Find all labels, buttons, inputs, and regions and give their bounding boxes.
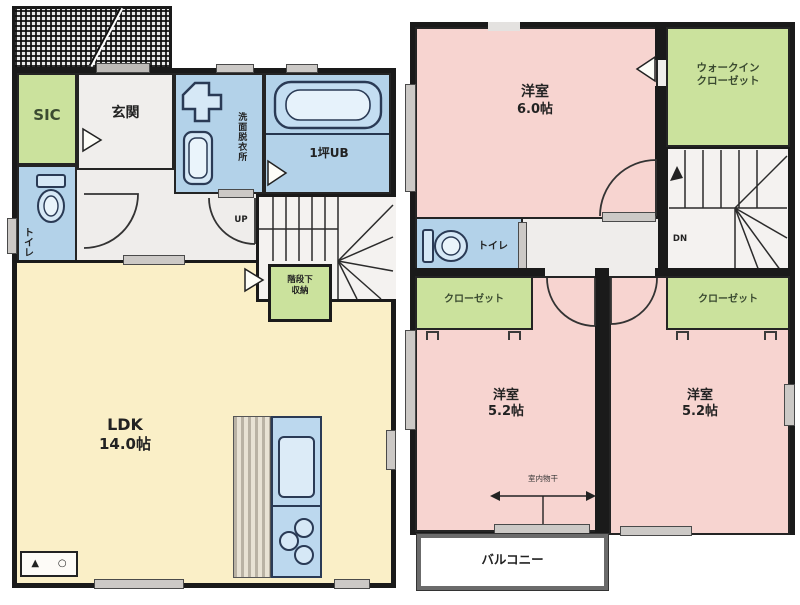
genkan-label: 玄関: [77, 105, 174, 123]
window: [405, 84, 416, 192]
wall-segment: [655, 268, 795, 276]
window: [620, 526, 692, 536]
hall-ldk-door: [123, 255, 185, 265]
balcony-label: バルコニー: [417, 552, 608, 568]
ldk-label: LDK: [55, 415, 195, 435]
wic-door-triangle-icon: [636, 56, 656, 82]
up-label: UP: [227, 215, 255, 226]
bedroom3-label-block: 洋室 5.2帖: [650, 388, 750, 421]
kitchen-sink: [278, 436, 315, 498]
stairs-down-treads: [669, 150, 787, 271]
toilet-1f-label: トイレ: [20, 222, 33, 262]
floor-plan: SIC 玄関 洗面脱衣所 1坪UB トイレ: [0, 0, 800, 605]
toilet-icon: [421, 224, 471, 268]
window: [7, 218, 17, 254]
window: [216, 64, 254, 73]
kitchen-cabinet: [233, 416, 271, 578]
bedroom3-door-arc: [609, 276, 659, 328]
wic-label-line2: クローゼット: [697, 75, 760, 87]
dn-label: DN: [668, 234, 692, 245]
storage-label-line2: 収納: [291, 286, 308, 296]
legend-triangle: ▲: [31, 558, 39, 571]
bedroom2-label: 洋室: [456, 388, 556, 404]
closet-bracket-icon: [426, 331, 439, 340]
hall-door-arc: [82, 192, 140, 250]
bedroom3-size: 5.2帖: [650, 404, 750, 420]
wic-label-line1: ウォークイン: [697, 62, 760, 74]
window: [488, 22, 520, 31]
washer-icon: [182, 82, 222, 122]
toilet-2f-label: トイレ: [468, 241, 518, 254]
storage-label-line1: 階段下: [287, 275, 313, 285]
closet-bracket-icon: [676, 331, 689, 340]
entrance-door: [96, 63, 150, 73]
window: [405, 330, 416, 430]
bath-divider: [266, 133, 389, 135]
bedroom2-door-arc: [545, 276, 597, 328]
window: [386, 430, 396, 470]
toilet-icon: [33, 173, 69, 225]
bedroom2-label-block: 洋室 5.2帖: [456, 388, 556, 421]
bath-door-triangle-icon: [267, 160, 287, 186]
washroom-label: 洗面脱衣所: [235, 84, 246, 190]
bathtub-icon: [272, 79, 384, 131]
bedroom1-size: 6.0帖: [475, 102, 595, 118]
ldk-label-block: LDK 14.0帖: [55, 415, 195, 454]
closet-right-label: クローゼット: [666, 294, 790, 307]
bedroom1-label: 洋室: [475, 84, 595, 102]
genkan-door-triangle-icon: [82, 128, 102, 152]
window: [784, 384, 795, 426]
ldk-size: 14.0帖: [55, 435, 195, 454]
storage-door-triangle-icon: [244, 268, 264, 292]
bedroom1-label-block: 洋室 6.0帖: [475, 84, 595, 118]
window: [286, 64, 318, 73]
laundry-label: 室内物干: [498, 474, 588, 483]
wic-label-block: ウォークイン クローゼット: [666, 62, 790, 88]
kitchen-divider: [271, 505, 322, 507]
sic-label: SIC: [17, 106, 77, 125]
storage-label: 階段下 収納: [268, 275, 332, 296]
closet-bracket-icon: [508, 331, 521, 340]
bedroom2-size: 5.2帖: [456, 404, 556, 420]
sink-icon: [182, 130, 214, 186]
bath-label: 1坪UB: [284, 146, 374, 161]
wall-segment: [658, 219, 668, 268]
window: [94, 579, 184, 589]
stove-burners-icon: [276, 515, 318, 569]
toilet-door: [518, 222, 527, 270]
window: [334, 579, 370, 589]
washroom-door: [218, 189, 254, 198]
wall-segment: [415, 268, 545, 276]
closet-left-label: クローゼット: [415, 294, 533, 307]
bedroom1-door-arc: [600, 160, 658, 218]
legend-box: ▲ ○: [20, 551, 78, 577]
legend-circle: ○: [58, 558, 67, 571]
closet-bracket-icon: [764, 331, 777, 340]
bedroom3-label: 洋室: [650, 388, 750, 404]
